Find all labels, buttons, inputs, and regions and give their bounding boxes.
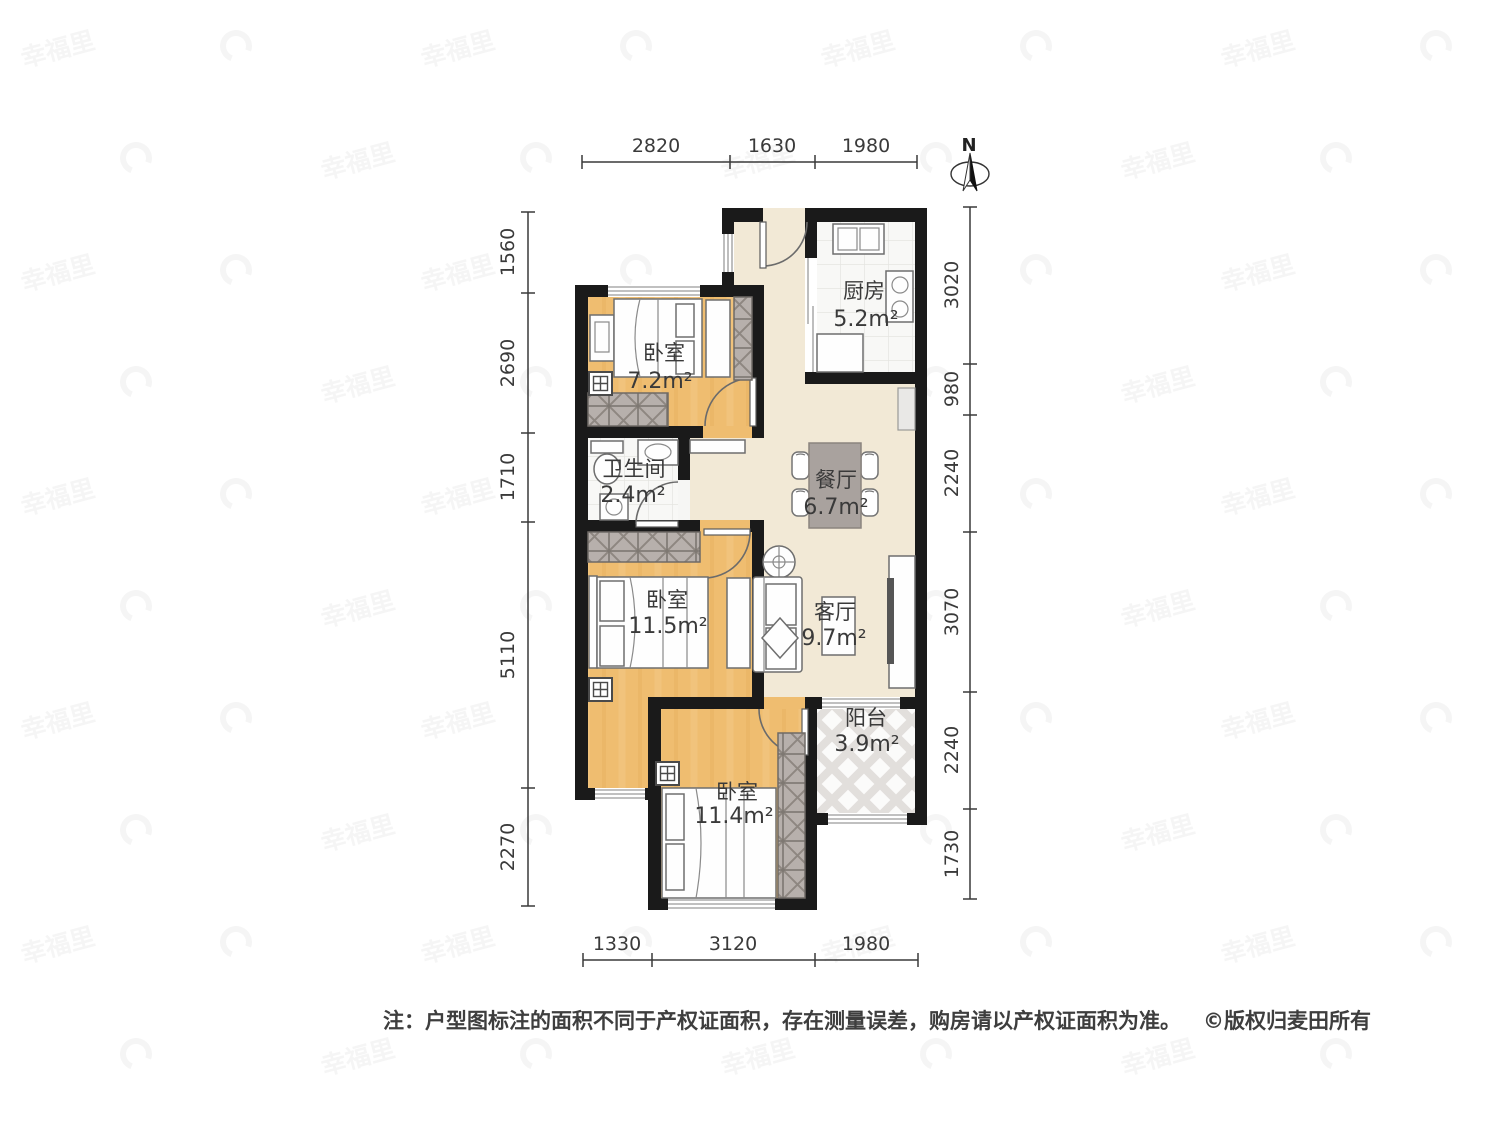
bedroom-middle-wardrobe (588, 532, 700, 562)
bedroom-bottom-area: 11.4m² (694, 804, 773, 829)
dim-left-0: 1560 (497, 228, 519, 276)
dim-right-0: 3020 (941, 261, 963, 309)
dining-area: 6.7m² (803, 495, 868, 520)
bedroom-bottom-label: 卧室 (716, 780, 758, 804)
floor-outlet-icon (589, 678, 612, 701)
bedroom-bottom-wardrobe (778, 733, 805, 898)
bedroom-top-label: 卧室 (643, 341, 685, 365)
dim-right-3: 3070 (941, 588, 963, 636)
bathroom-label: 卫生间 (603, 457, 666, 481)
dim-right-1: 980 (941, 371, 963, 407)
balcony-label: 阳台 (845, 706, 887, 730)
dimension-right: 3020 980 2240 3070 2240 1730 (941, 207, 977, 899)
living-label: 客厅 (814, 600, 856, 624)
bathroom-threshold (678, 480, 690, 524)
dim-left-1: 2690 (497, 339, 519, 387)
bedroom-bottom-window (668, 898, 775, 910)
living-area: 9.7m² (801, 626, 866, 651)
dim-bottom-1: 3120 (709, 933, 757, 955)
dim-top-2: 1980 (842, 135, 890, 157)
entry-threshold (763, 208, 807, 222)
kitchen-sliding-door (805, 258, 817, 372)
bathroom-area: 2.4m² (600, 483, 665, 508)
dimension-top: 2820 1630 1980 (582, 135, 917, 169)
tv (887, 578, 894, 664)
kitchen-label: 厨房 (843, 279, 885, 303)
dim-left-3: 5110 (497, 631, 519, 679)
entry-west-window (722, 234, 734, 272)
copyright-text: ©版权归麦田所有 (1203, 1009, 1371, 1033)
dimension-bottom: 1330 3120 1980 (583, 933, 918, 967)
entry-cabinet (734, 297, 752, 380)
dim-left-4: 2270 (497, 823, 519, 871)
footer-note: 注：户型图标注的面积不同于产权证面积，存在测量误差，购房请以产权证面积为准。©版… (383, 1005, 1371, 1035)
dining-side-cabinet (898, 388, 915, 430)
dimension-left: 1560 2690 1710 5110 2270 (497, 212, 535, 906)
bedroom-top-area: 7.2m² (627, 369, 692, 394)
dim-right-2: 2240 (941, 449, 963, 497)
dim-top-0: 2820 (632, 135, 680, 157)
dim-right-5: 1730 (941, 830, 963, 878)
north-compass: N (951, 135, 989, 191)
dining-label: 餐厅 (815, 468, 857, 492)
kitchen-area: 5.2m² (833, 307, 898, 332)
bedroom-middle-ext-floor (588, 697, 648, 788)
bedroom-middle-label: 卧室 (646, 588, 688, 612)
hall-strip-floor (764, 285, 805, 384)
dim-bottom-2: 1980 (842, 933, 890, 955)
floor-outlet-icon (589, 372, 612, 395)
dim-right-4: 2240 (941, 726, 963, 774)
kitchen-cabinet (817, 334, 863, 372)
bedroom-top-wardrobe (588, 393, 668, 426)
disclaimer-text: 注：户型图标注的面积不同于产权证面积，存在测量误差，购房请以产权证面积为准。 (383, 1009, 1181, 1033)
bedroom-bottom-threshold (762, 697, 805, 709)
dim-bottom-0: 1330 (593, 933, 641, 955)
dim-left-2: 1710 (497, 453, 519, 501)
floorplan-page: 幸福里幸福里幸福里幸福里幸福里幸福里幸福里幸福里幸福里幸福里幸福里幸福里幸福里幸… (0, 0, 1500, 1125)
dim-top-1: 1630 (748, 135, 796, 157)
bedroom-top-threshold (703, 426, 753, 438)
balcony-area: 3.9m² (834, 732, 899, 757)
hall-cabinet (690, 440, 745, 453)
floor-plan-svg: 卧室 7.2m² 厨房 5.2m² 卫生间 2.4m² 餐厅 6.7m² 卧室 … (0, 0, 1500, 1125)
floor-outlet-icon (656, 762, 679, 785)
balcony-bottom-window (828, 813, 907, 825)
bedroom-top-window (608, 285, 700, 297)
north-label: N (961, 135, 976, 156)
bedroom-middle-ext-window (595, 788, 645, 800)
bedroom-middle-area: 11.5m² (628, 614, 707, 639)
